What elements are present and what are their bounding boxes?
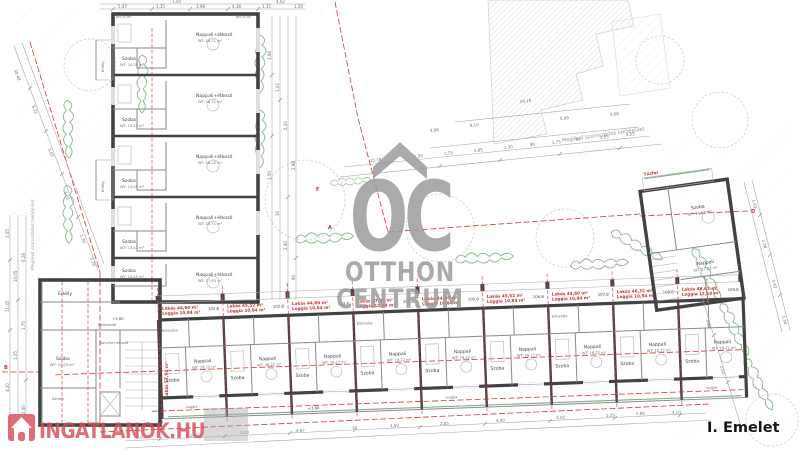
svg-text:1,75: 1,75	[444, 150, 454, 156]
svg-text:2,40: 2,40	[283, 241, 288, 250]
room-area: WT: 14,05 m²	[120, 185, 145, 189]
svg-text:1,50: 1,50	[172, 0, 181, 4]
room-label: Loggia	[705, 386, 717, 390]
svg-text:1,75: 1,75	[552, 139, 562, 145]
room-label: Előszoba	[162, 328, 178, 333]
section-marker-a: A	[328, 225, 332, 231]
sill-height-label: pm 0,90	[116, 15, 132, 19]
room-label: Kamra	[52, 397, 64, 401]
room-label: Szoba	[231, 375, 245, 382]
left-wing-unit: Nappali+étkező WT: 18,71 m² Szoba WT: 14…	[113, 20, 258, 68]
room-label: Nappali	[584, 344, 602, 351]
room-label: Szoba	[685, 358, 699, 365]
svg-text:5,99: 5,99	[560, 115, 570, 121]
left-wing-unit: Nappali+étkező WT: 18,22 m² Szoba WT: 14…	[113, 142, 258, 190]
floor-title: I. Emelet	[707, 420, 780, 436]
room-label: Közlekedő	[98, 323, 116, 327]
unit-code: 102.B	[273, 303, 285, 308]
svg-text:5,20: 5,20	[283, 121, 288, 130]
svg-text:4,10: 4,10	[5, 383, 10, 392]
svg-text:2,40: 2,40	[21, 405, 26, 414]
svg-text:10: 10	[352, 425, 358, 430]
svg-text:1,35: 1,35	[13, 351, 18, 360]
svg-text:4,00: 4,00	[496, 418, 506, 423]
svg-text:2,85: 2,85	[440, 421, 450, 426]
room-label: Nappali	[324, 353, 342, 360]
svg-text:1,35: 1,35	[606, 413, 616, 418]
oc-word-centrum: CENTRUM	[336, 283, 464, 315]
room-label: Nappali	[259, 356, 277, 363]
room-label: Nappali	[519, 346, 537, 353]
room-label: Szoba	[122, 56, 136, 62]
neighbor-building: Meglévő szomszédos lakóépület	[488, 0, 670, 144]
room-label: Loggia	[186, 405, 198, 409]
room-label: Szoba	[122, 117, 136, 123]
room-area: WT: 18,22 m²	[517, 353, 542, 358]
svg-text:3,98: 3,98	[267, 51, 272, 60]
section-marker-f: F	[316, 187, 319, 193]
level-marker: +3,60	[112, 316, 124, 321]
unit-code: 106.B	[533, 294, 545, 299]
svg-text:2,85: 2,85	[474, 147, 484, 153]
left-wing-unit: Nappali+étkező WT: 18,71 m² Szoba WT: 13…	[113, 203, 258, 251]
floorplan-drawing: Meglévő szomszédos lakóépület Meglévő sz…	[0, 0, 800, 455]
room-label: Nappali	[194, 358, 212, 365]
loggia-area-label: Loggia 10,84 m²	[162, 309, 200, 315]
unit-code: 109.B	[728, 287, 740, 292]
room-label: Nappali	[454, 349, 472, 356]
staircase	[126, 342, 158, 410]
svg-text:1,30: 1,30	[504, 144, 514, 150]
svg-text:1,02: 1,02	[275, 83, 280, 92]
left-wing: Erkély Erkély Nappali+étkező WT: 18,71 m…	[96, 14, 258, 302]
balcony-label: Erkély	[101, 60, 105, 72]
loggia-area-label: Loggia 10,84 m²	[552, 295, 590, 301]
room-label: Előszoba	[357, 321, 373, 326]
svg-text:3,05: 3,05	[5, 229, 10, 238]
room-area: WT: 13,42 m²	[120, 124, 145, 128]
svg-text:4,53: 4,53	[626, 131, 636, 137]
level-marker: +3,60	[308, 405, 320, 410]
unit-code: 101.B	[208, 306, 220, 311]
room-area: WT: 18,71 m²	[198, 222, 223, 226]
svg-text:4,67: 4,67	[296, 428, 306, 433]
room-label: Szoba	[360, 370, 374, 377]
svg-text:8,10: 8,10	[470, 122, 480, 128]
svg-text:2,85: 2,85	[636, 411, 646, 416]
room-label: Szoba	[555, 363, 569, 370]
room-area: WT: 18,71 m²	[198, 100, 223, 104]
svg-text:4,38: 4,38	[232, 4, 241, 9]
svg-text:10,05: 10,05	[13, 270, 18, 282]
svg-text:11,45: 11,45	[5, 300, 10, 312]
left-wing-unit: Nappali+étkező WT: 17,63 m² Szoba WT: 14…	[113, 264, 233, 288]
room-area: WT: 14,05 m²	[120, 63, 145, 67]
svg-text:4,10: 4,10	[672, 410, 682, 415]
loggia-area-label: Loggia 10,84 m²	[227, 307, 265, 313]
room-label: Konyha+étkező	[100, 341, 128, 345]
svg-text:4,68: 4,68	[610, 111, 620, 117]
room-label: Nappali+étkező	[196, 31, 233, 38]
room-label: Szoba	[295, 373, 309, 380]
neighbor-building-left-label: Meglévő szomszédos lakóépület	[29, 199, 36, 270]
svg-text:1,50: 1,50	[267, 171, 272, 180]
svg-text:90: 90	[530, 141, 536, 147]
room-area: WT: 18,71 m²	[198, 39, 223, 43]
sill-height-label: pm 0,90	[236, 15, 252, 19]
room-area: WT: 18,22 m²	[322, 360, 347, 365]
room-label: Nappali+étkező	[196, 153, 233, 160]
room-label: Szoba	[490, 365, 504, 372]
watermark-gray-box	[204, 408, 248, 441]
room-label: Nappali+étkező	[196, 92, 233, 99]
svg-text:3,98: 3,98	[430, 127, 440, 133]
room-label: Szoba	[620, 361, 634, 368]
loggia-area-label: Loggia 10,84 m²	[487, 298, 525, 304]
room-label: Szoba	[425, 368, 439, 375]
floorplan-page: Meglévő szomszédos lakóépület Meglévő sz…	[0, 0, 800, 455]
room-label: Szoba	[56, 356, 70, 362]
room-label: Szoba	[166, 377, 180, 384]
svg-text:3,10: 3,10	[556, 415, 566, 420]
svg-text:1,75: 1,75	[21, 321, 26, 330]
loggia-area-label: Loggia 10,84 m²	[292, 305, 330, 311]
svg-text:1,50: 1,50	[390, 423, 400, 428]
room-label: Szoba	[122, 178, 136, 184]
room-label: Nappali	[389, 351, 407, 358]
svg-text:1,35: 1,35	[262, 4, 271, 9]
room-area: WT: 15,03 m²	[50, 363, 75, 367]
left-wing-unit: Nappali+étkező WT: 18,71 m² Szoba WT: 13…	[113, 81, 258, 129]
room-label: Nappali+étkező	[196, 214, 233, 221]
svg-text:30: 30	[275, 210, 280, 216]
svg-text:85: 85	[576, 136, 582, 142]
svg-text:1,50: 1,50	[294, 4, 303, 9]
room-label: Nappali	[649, 341, 667, 348]
unit-code: 105.B	[468, 296, 480, 301]
room-label: Szoba	[122, 268, 136, 274]
svg-text:2,05: 2,05	[600, 134, 610, 140]
svg-text:3,98: 3,98	[196, 4, 205, 9]
room-label: Erkély	[58, 290, 72, 297]
svg-text:90: 90	[291, 274, 296, 280]
room-label: Előszoba	[551, 314, 567, 319]
balcony-label: Erkély	[101, 180, 105, 192]
room-label: Szoba	[122, 239, 136, 245]
room-area: WT: 17,63 m²	[198, 279, 223, 283]
room-label: Nappali+étkező	[196, 271, 233, 278]
ingatlanok-logo-text: INGATLANOK.HU	[39, 419, 205, 443]
svg-text:6,28: 6,28	[21, 253, 26, 262]
room-label: Loggia	[445, 395, 457, 399]
room-area: WT: 13,42 m²	[120, 246, 145, 250]
section-marker-b: B	[4, 365, 8, 371]
otthon-centrum-watermark: OC OTTHON CENTRUM	[336, 142, 464, 315]
svg-text:2,98: 2,98	[291, 161, 296, 170]
svg-text:4,02: 4,02	[276, 0, 285, 4]
unit-code: 107.B	[598, 291, 610, 296]
room-area: WT: 18,22 m²	[198, 161, 223, 165]
svg-text:5,47: 5,47	[118, 4, 127, 9]
svg-text:1,35: 1,35	[156, 4, 165, 9]
